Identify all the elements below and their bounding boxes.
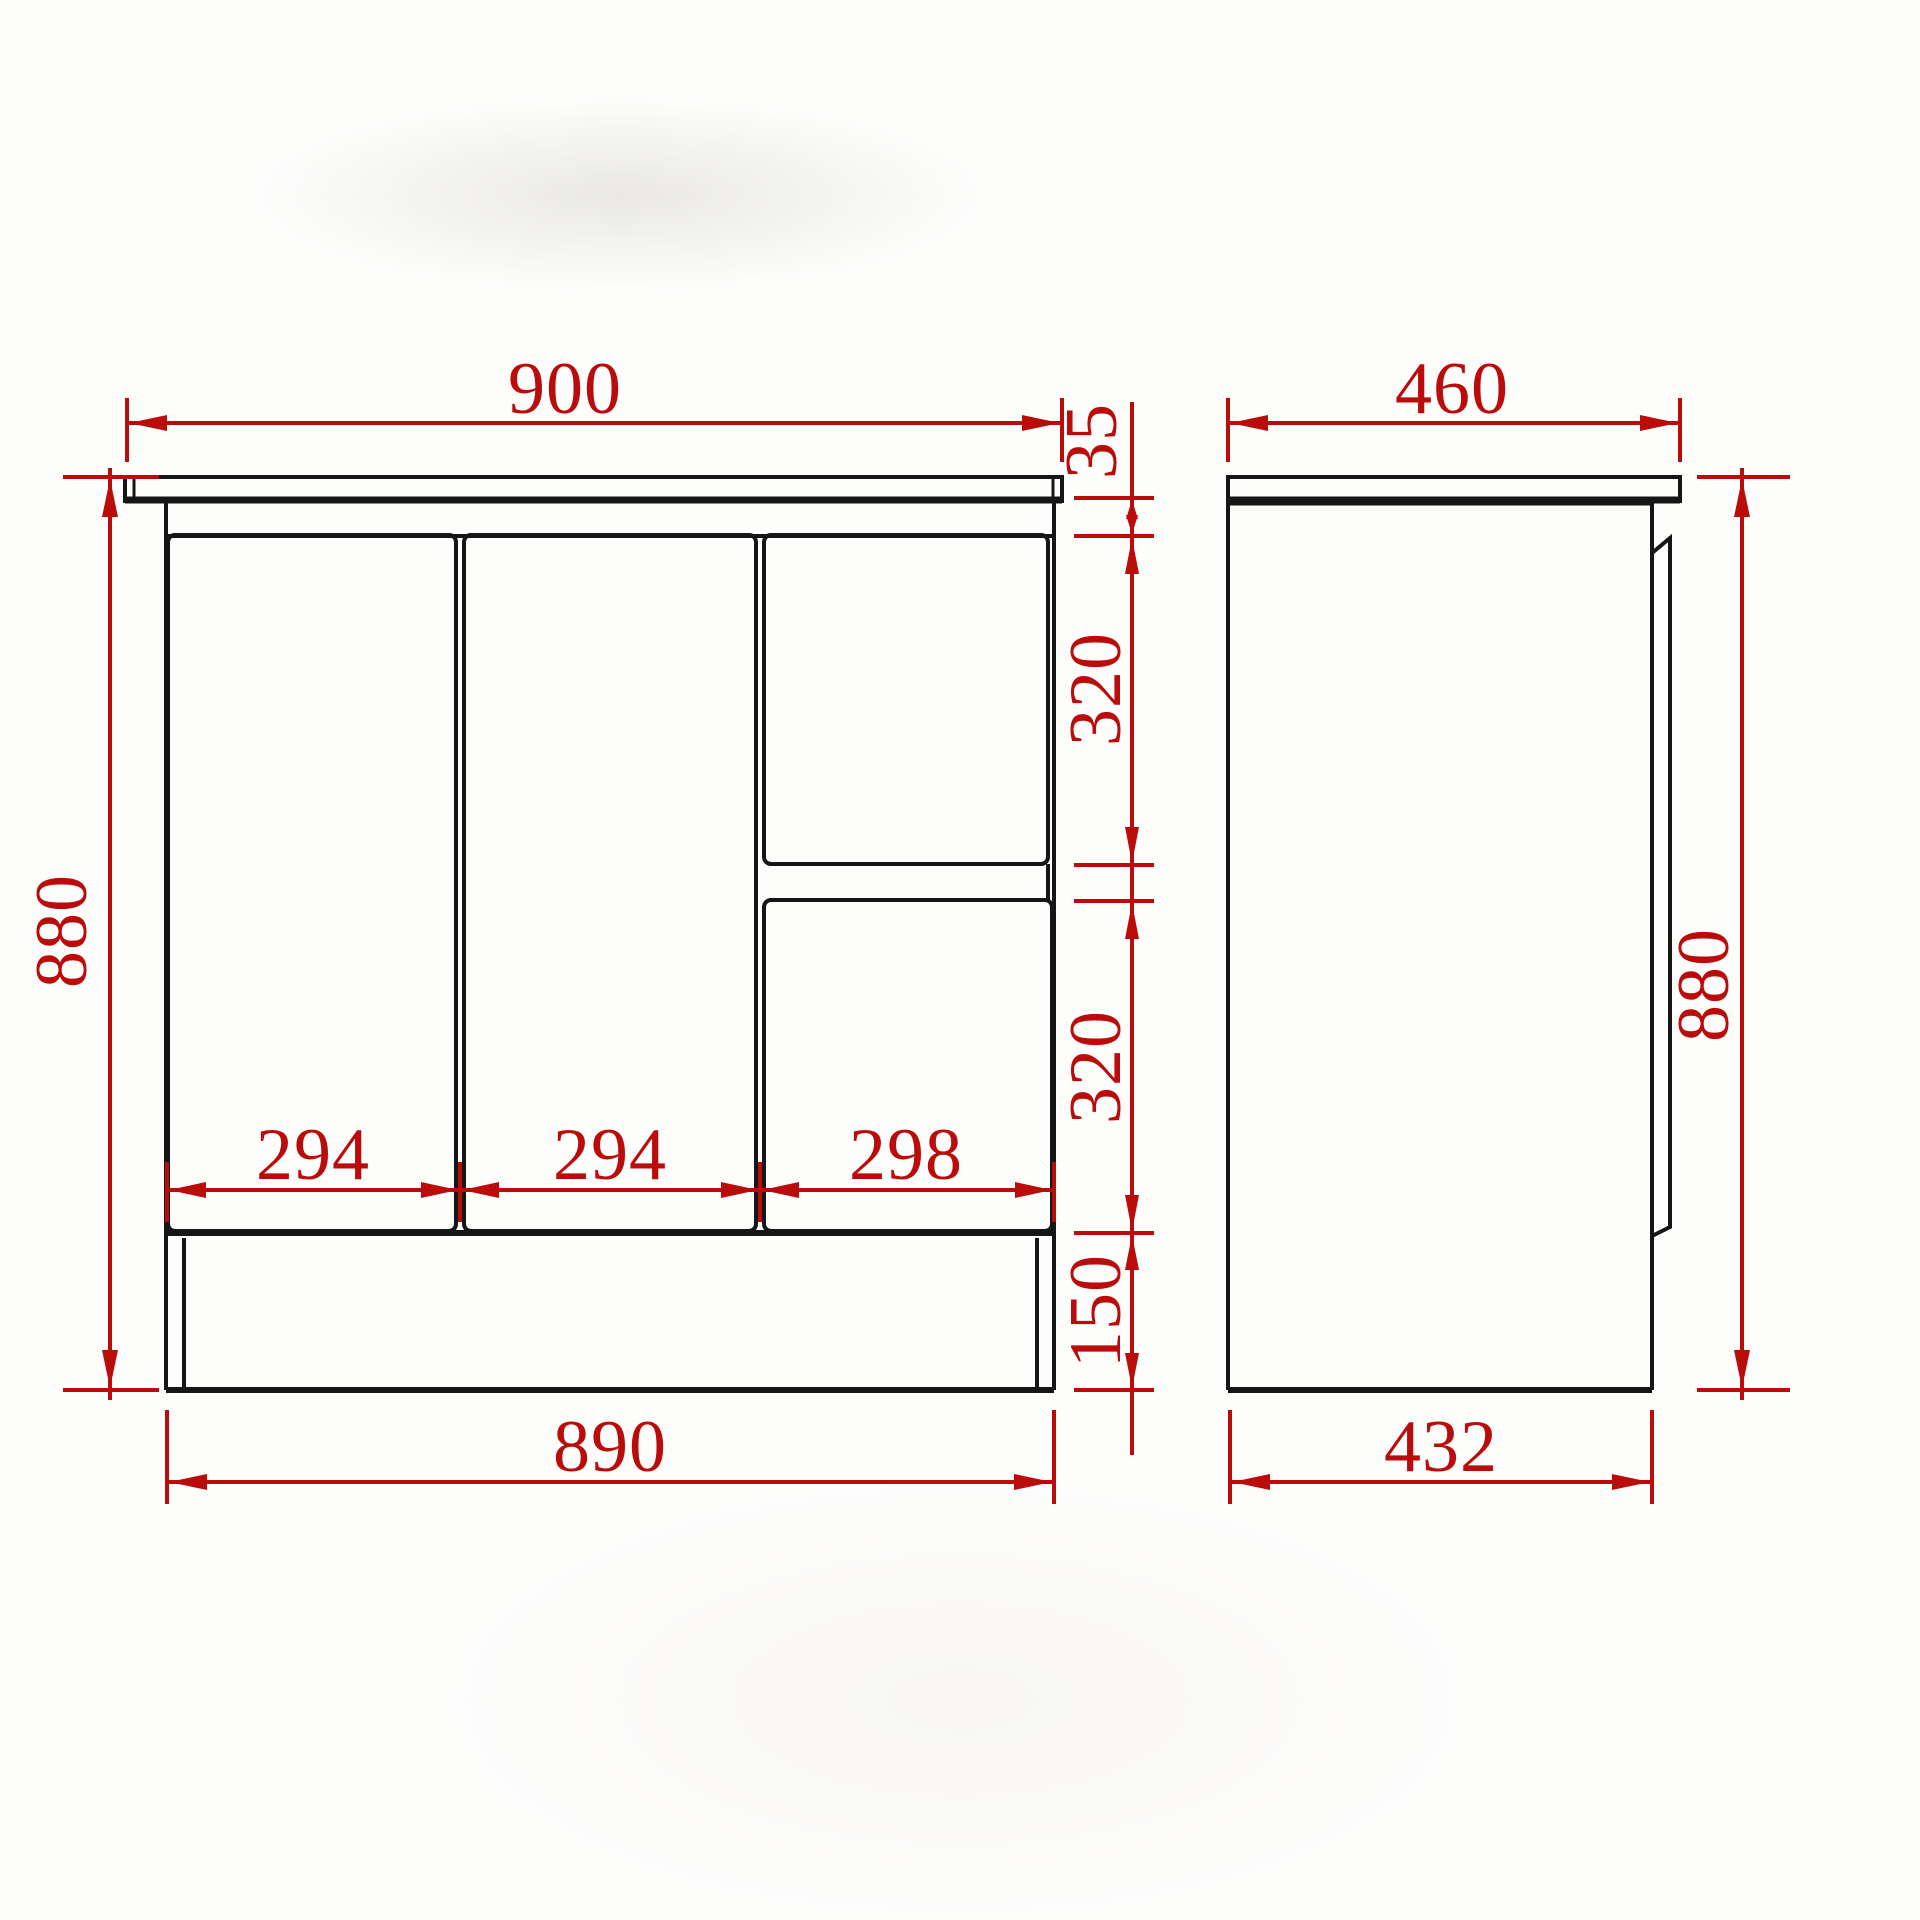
dim-side-bottom-depth-label: 432 [1384, 1410, 1498, 1484]
dim-front-kickboard-label: 150 [1059, 1254, 1133, 1368]
side-view-cabinet [1228, 477, 1680, 1390]
drawing-linework [0, 0, 1920, 1920]
front-view-cabinet [125, 477, 1062, 1390]
front-countertop [125, 477, 1062, 501]
dim-front-upper-section-label: 320 [1059, 632, 1133, 746]
side-door-front-edge [1652, 538, 1670, 1236]
front-carcass [166, 503, 1054, 1390]
dim-front-lower-section-label: 320 [1059, 1010, 1133, 1124]
front-top-drawer [764, 535, 1048, 901]
dim-front-middle-panel-label: 294 [553, 1118, 667, 1192]
front-kickboard [184, 1238, 1037, 1387]
dim-side-height-label: 880 [1667, 928, 1741, 1042]
dim-front-bottom-width-label: 890 [553, 1410, 667, 1484]
dim-front-top-width-label: 900 [508, 352, 622, 426]
side-countertop [1228, 477, 1680, 501]
dim-front-left-panel-label: 294 [256, 1118, 370, 1192]
dim-side-top-depth-label: 460 [1395, 352, 1509, 426]
dim-front-top-rail-label: 35 [1055, 403, 1129, 479]
dim-front-height-label: 880 [25, 874, 99, 988]
front-view-dimensions [63, 398, 1154, 1504]
dim-front-right-panel-label: 298 [849, 1118, 963, 1192]
dimension-drawing-canvas: 900 880 35 320 320 150 294 294 298 890 4… [0, 0, 1920, 1920]
side-carcass [1228, 502, 1652, 1390]
